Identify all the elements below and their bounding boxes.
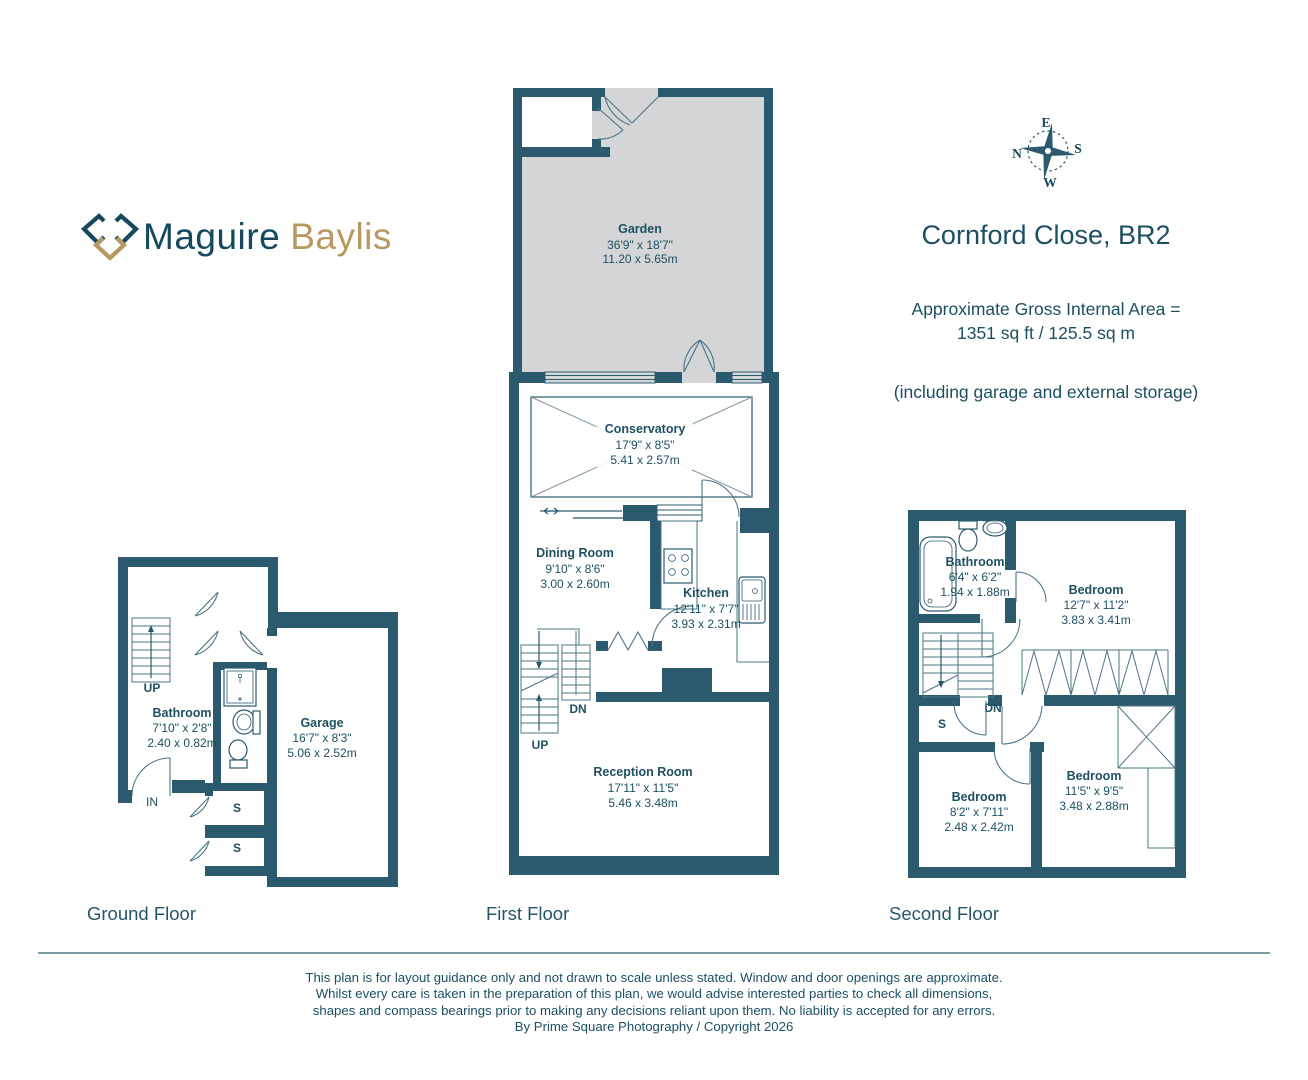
dining-imperial: 9'10" x 8'6": [545, 562, 604, 576]
basin: [233, 710, 260, 734]
reception-name: Reception Room: [593, 765, 692, 779]
bedroom3-name: Bedroom: [1067, 769, 1122, 783]
conservatory-name: Conservatory: [605, 422, 686, 436]
garden-imperial: 36'9" x 18'7": [607, 238, 673, 252]
dining-metric: 3.00 x 2.60m: [540, 577, 609, 591]
floorplan-page: { "brand": { "word1": "Maguire", "word2"…: [0, 0, 1308, 1080]
sink: [739, 577, 765, 623]
conservatory-metric: 5.41 x 2.57m: [610, 453, 679, 467]
entrance-in-label: IN: [146, 795, 158, 809]
stairs-dn-label: DN: [569, 702, 586, 716]
entrance-door: [132, 758, 170, 796]
compass-west: W: [1043, 175, 1057, 190]
bedroom2-metric: 2.48 x 2.42m: [944, 820, 1013, 834]
dining-name: Dining Room: [536, 546, 614, 560]
compass-north: N: [1012, 146, 1022, 161]
basin: [983, 520, 1007, 536]
stairs-dn-label: DN: [984, 701, 1001, 715]
bathroom-fixtures: [224, 668, 260, 768]
first-floor-plan: UP DN Garden 36'9" x 18'7" 11.20 x 5.65m…: [500, 80, 790, 885]
brand-word-secondary: Baylis: [290, 216, 392, 257]
bifold-door: [608, 632, 648, 650]
second-floor-caption: Second Floor: [889, 903, 999, 925]
storage-s-label: S: [938, 717, 946, 731]
compass-south: S: [1074, 141, 1082, 156]
header: Cornford Close, BR2 Approximate Gross In…: [846, 220, 1246, 421]
logo-diamond-gold: [96, 238, 124, 258]
staircase: UP: [132, 618, 170, 695]
bedroom1-metric: 3.83 x 3.41m: [1061, 613, 1130, 627]
compass-rose: E S W N: [985, 95, 1115, 215]
garden-metric: 11.20 x 5.65m: [602, 252, 677, 266]
wardrobe-bedroom1: [1022, 650, 1168, 695]
second-floor-plan: DN Bathroom 6'4" x 6'2" 1.94 x 1.88m Bed…: [890, 495, 1210, 890]
wardrobe-bedroom3: [1118, 706, 1175, 848]
area-line2: 1351 sq ft / 125.5 sq m: [846, 321, 1246, 345]
reception-imperial: 17'11" x 11'5": [608, 781, 679, 795]
kitchen-metric: 3.93 x 2.31m: [671, 617, 740, 631]
footer-line-3: shapes and compass bearings prior to mak…: [0, 1003, 1308, 1019]
page-title: Cornford Close, BR2: [846, 220, 1246, 251]
bedroom2-imperial: 8'2" x 7'11": [950, 805, 1008, 819]
bedroom3-imperial: 11'5" x 9'5": [1065, 784, 1123, 798]
brand-logo-icon: [80, 205, 150, 265]
bedroom1-imperial: 12'7" x 11'2": [1064, 598, 1129, 612]
bathroom-metric: 2.40 x 0.82m: [147, 736, 216, 750]
bathroom-imperial: 7'10" x 2'8": [152, 721, 211, 735]
double-arrow-icon: [544, 508, 558, 514]
external-storage: [522, 97, 592, 147]
hob: [664, 549, 692, 583]
sliding-door: [540, 508, 629, 518]
compass-center-dot: [1045, 148, 1051, 154]
conservatory-imperial: 17'9" x 8'5": [615, 438, 674, 452]
garden-name: Garden: [618, 222, 662, 236]
footer-divider: [38, 952, 1270, 954]
bathroom-name: Bathroom: [152, 706, 211, 720]
footer-disclaimer: This plan is for layout guidance only an…: [0, 970, 1308, 1036]
area-note: (including garage and external storage): [846, 382, 1246, 403]
garage-metric: 5.06 x 2.52m: [287, 746, 356, 760]
toilet: [229, 740, 247, 768]
compass-east: E: [1041, 115, 1050, 130]
shower: [224, 668, 256, 706]
bathroom-imperial: 6'4" x 6'2": [949, 570, 1001, 584]
kitchen-imperial: 12'11" x 7'7": [674, 602, 739, 616]
bedroom2-name: Bedroom: [952, 790, 1007, 804]
brand-word-primary: Maguire: [143, 216, 280, 257]
brand-name: MaguireBaylis: [143, 216, 392, 258]
toilet: [959, 521, 977, 551]
reception-metric: 5.46 x 3.48m: [608, 796, 677, 810]
footer-line-2: Whilst every care is taken in the prepar…: [0, 986, 1308, 1002]
first-floor-caption: First Floor: [486, 903, 569, 925]
ground-floor-plan: UP Bathroom 7'10" x 2'8" 2.4: [100, 545, 410, 895]
stairs-up-label: UP: [144, 681, 161, 695]
footer-line-1: This plan is for layout guidance only an…: [0, 970, 1308, 986]
bathroom-name: Bathroom: [945, 555, 1004, 569]
kitchen-name: Kitchen: [683, 586, 729, 600]
ground-floor-caption: Ground Floor: [87, 903, 196, 925]
storage-s2-label: S: [233, 841, 241, 855]
staircase: UP DN: [521, 629, 590, 752]
stairs-up-label: UP: [532, 738, 549, 752]
bedroom1-name: Bedroom: [1069, 583, 1124, 597]
area-line1: Approximate Gross Internal Area =: [846, 297, 1246, 321]
garage-name: Garage: [300, 716, 343, 730]
garage-imperial: 16'7" x 8'3": [292, 731, 351, 745]
storage-s1-label: S: [233, 801, 241, 815]
bathroom-metric: 1.94 x 1.88m: [940, 585, 1009, 599]
bedroom3-metric: 3.48 x 2.88m: [1059, 799, 1128, 813]
footer-line-4: By Prime Square Photography / Copyright …: [0, 1019, 1308, 1035]
